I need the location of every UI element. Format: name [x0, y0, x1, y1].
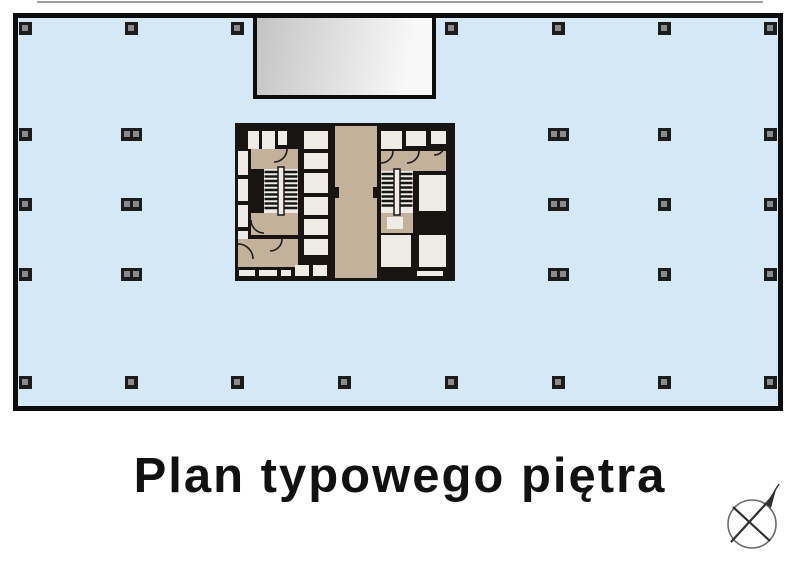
central-corridor: [335, 126, 377, 278]
structural-column: [658, 268, 671, 281]
structural-column: [19, 268, 32, 281]
structural-column: [658, 198, 671, 211]
elevator-shaft-block: [253, 14, 436, 99]
structural-column: [552, 376, 565, 389]
right-staircase: [381, 169, 413, 215]
structural-column: [764, 268, 777, 281]
floor-plan-page: Plan typowego piętra: [0, 0, 800, 572]
structural-column: [231, 22, 244, 35]
structural-column: [548, 128, 569, 141]
north-arrow-icon: [716, 478, 786, 558]
structural-column: [231, 376, 244, 389]
structural-column: [658, 376, 671, 389]
structural-column: [658, 128, 671, 141]
structural-column: [121, 128, 142, 141]
structural-column: [19, 128, 32, 141]
plan-title: Plan typowego piętra: [0, 450, 800, 504]
structural-column: [125, 22, 138, 35]
structural-column: [764, 376, 777, 389]
structural-column: [445, 22, 458, 35]
structural-column: [19, 376, 32, 389]
structural-column: [19, 198, 32, 211]
structural-column: [445, 376, 458, 389]
structural-column: [125, 376, 138, 389]
building-core-plan: [235, 123, 455, 281]
structural-column: [552, 22, 565, 35]
structural-column: [764, 198, 777, 211]
structural-column: [548, 268, 569, 281]
structural-column: [121, 198, 142, 211]
structural-column: [548, 198, 569, 211]
structural-column: [764, 22, 777, 35]
structural-column: [121, 268, 142, 281]
structural-column: [338, 376, 351, 389]
top-edge-line: [37, 1, 763, 3]
structural-column: [764, 128, 777, 141]
structural-column: [658, 22, 671, 35]
left-staircase: [264, 167, 298, 215]
structural-column: [19, 22, 32, 35]
